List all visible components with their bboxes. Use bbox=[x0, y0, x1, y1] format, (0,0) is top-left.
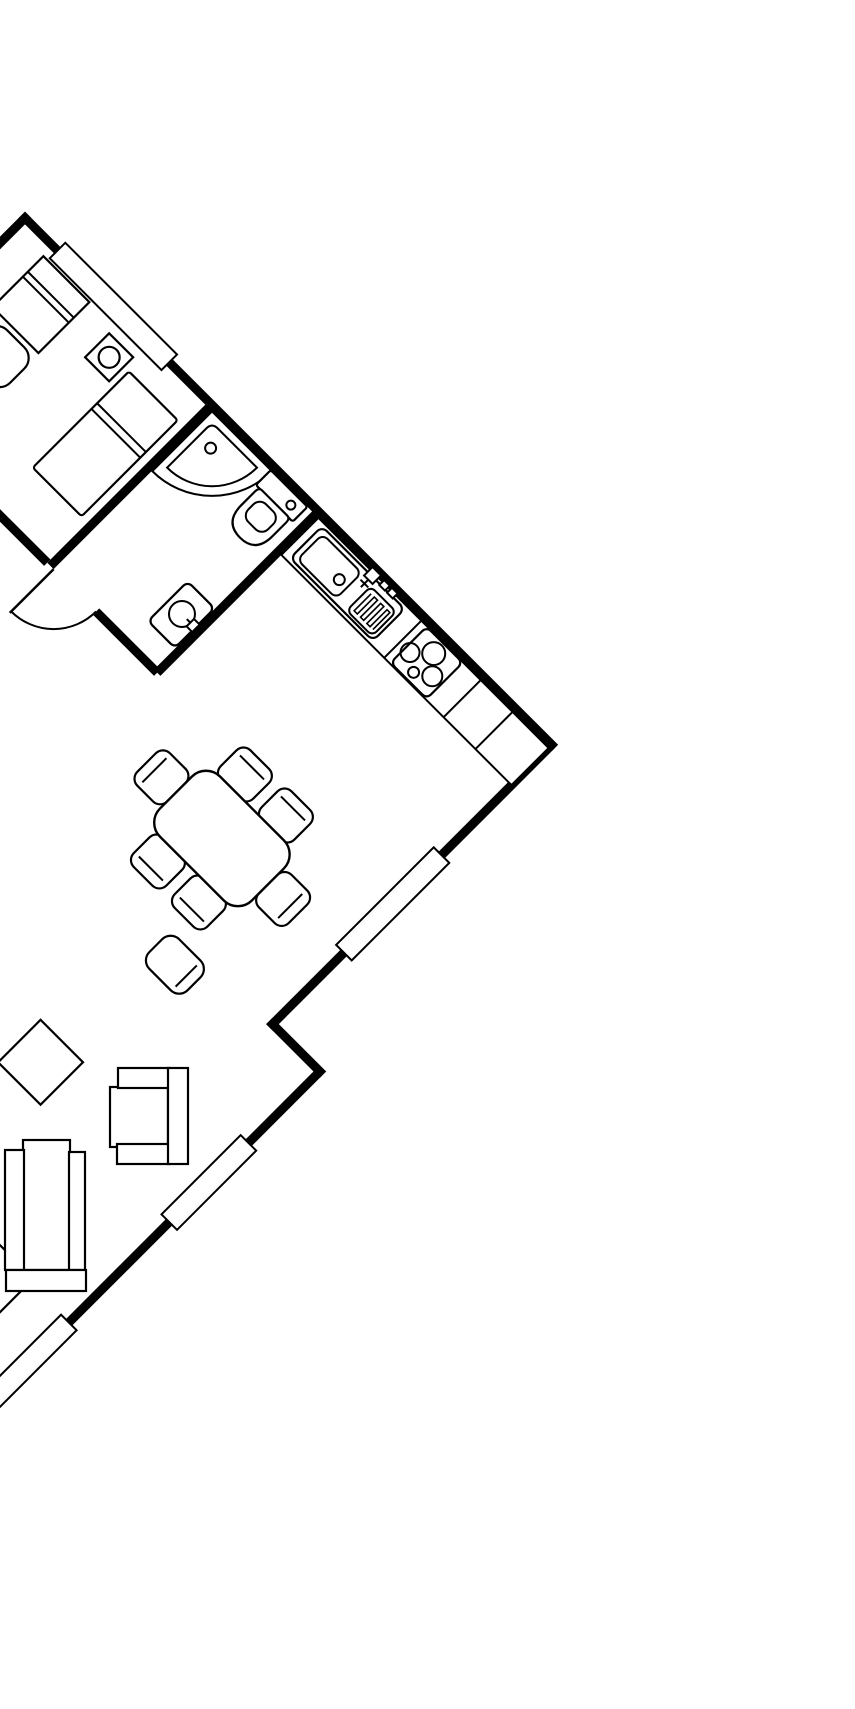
sofa-back bbox=[6, 1270, 86, 1291]
exterior-wall-top-b bbox=[165, 358, 555, 748]
bathroom-door bbox=[10, 569, 96, 655]
kitchen bbox=[281, 515, 551, 785]
exterior-wall-right-b bbox=[269, 951, 345, 1027]
living-area-straight bbox=[5, 1068, 188, 1291]
window-icon-living-3 bbox=[0, 1315, 77, 1418]
exterior-wall-jog bbox=[269, 1021, 323, 1075]
floor-plan-canvas bbox=[0, 0, 855, 1709]
armchair-armrest-bottom bbox=[117, 1144, 170, 1164]
square-side-table-icon-1 bbox=[0, 1020, 83, 1105]
dining-area bbox=[88, 704, 356, 972]
door-leaf bbox=[10, 569, 54, 613]
sofa-icon bbox=[5, 1140, 86, 1291]
door-swing-icon bbox=[11, 569, 96, 654]
rotated-plan bbox=[0, 207, 615, 1418]
armchair-back bbox=[168, 1068, 188, 1164]
sofa-armrest-right bbox=[69, 1152, 85, 1270]
sofa-seat bbox=[23, 1140, 70, 1270]
exterior-wall-lower-a bbox=[247, 1071, 320, 1144]
armchair-seat bbox=[110, 1087, 168, 1147]
floor-plan-page bbox=[0, 0, 855, 1709]
sofa-armrest-left bbox=[5, 1150, 24, 1270]
lounge-chair-icon bbox=[141, 931, 209, 999]
washbasin-body bbox=[148, 581, 214, 647]
washbasin-icon bbox=[148, 581, 215, 648]
bed-icon bbox=[33, 371, 178, 516]
exterior-wall-top-a bbox=[22, 215, 62, 255]
window-icon-living-1 bbox=[336, 847, 449, 960]
wall-bathroom-living bbox=[96, 612, 157, 673]
armchair-armrest-top bbox=[118, 1068, 170, 1088]
armchair-icon bbox=[110, 1068, 188, 1164]
shower-drain-icon bbox=[203, 440, 219, 456]
